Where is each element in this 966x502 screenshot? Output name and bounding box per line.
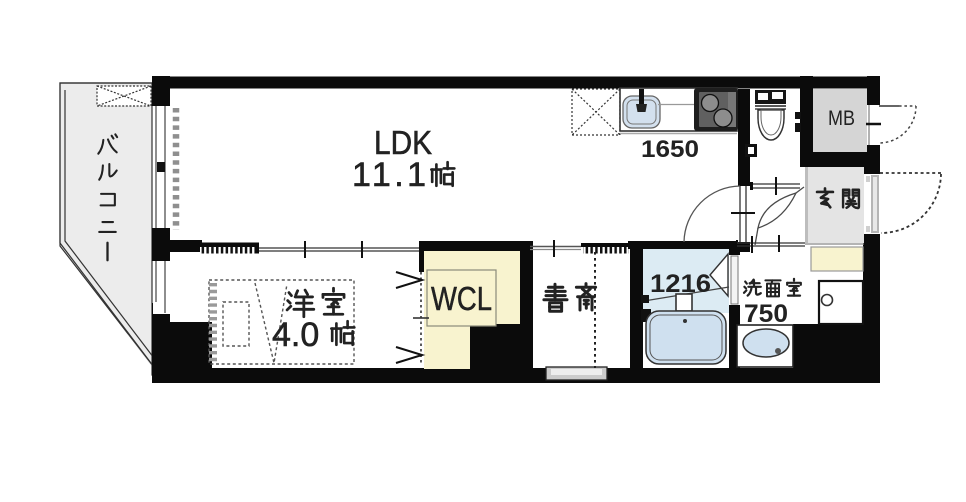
svg-text:750: 750 <box>744 300 788 328</box>
svg-text:MB: MB <box>828 107 855 130</box>
svg-text:WCL: WCL <box>431 280 492 317</box>
svg-text:1650: 1650 <box>641 136 699 163</box>
svg-text:1216: 1216 <box>650 270 711 298</box>
svg-text:11.1: 11.1 <box>352 156 426 194</box>
svg-text:4.0: 4.0 <box>272 316 319 354</box>
